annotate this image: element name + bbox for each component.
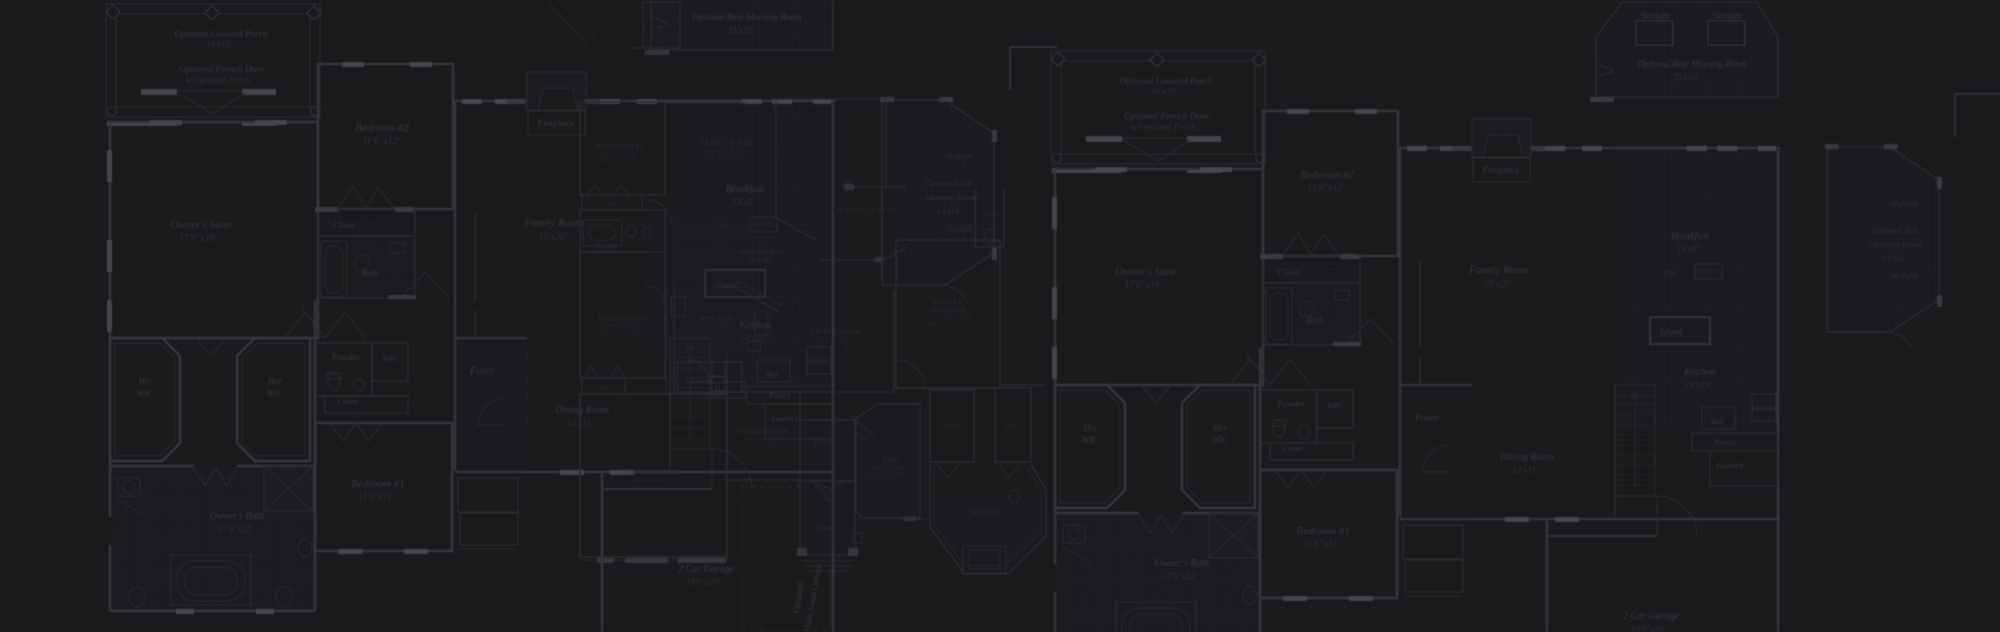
- svg-text:19'6"x20': 19'6"x20': [686, 577, 721, 587]
- svg-text:LIVING ROOM: LIVING ROOM: [811, 328, 862, 336]
- svg-text:W.I.C.: W.I.C.: [943, 423, 962, 430]
- svg-text:M. BATH: M. BATH: [971, 509, 999, 516]
- svg-text:Bedroom #2: Bedroom #2: [355, 122, 409, 134]
- svg-text:Ref: Ref: [766, 370, 779, 379]
- svg-text:UTILITY: UTILITY: [686, 379, 714, 386]
- svg-text:10'0" CLG. HT.: 10'0" CLG. HT.: [812, 344, 855, 350]
- svg-text:BATH: BATH: [983, 212, 998, 218]
- svg-text:ENTRY: ENTRY: [817, 526, 840, 533]
- svg-text:BREAKFAST: BREAKFAST: [740, 249, 784, 257]
- svg-text:COVERED PATIO: COVERED PATIO: [826, 206, 896, 215]
- svg-text:14'0" X 16'0": 14'0" X 16'0": [817, 337, 854, 343]
- svg-text:NOOK: NOOK: [749, 257, 771, 265]
- svg-text:Laundry: Laundry: [770, 414, 799, 423]
- svg-text:Morning Room: Morning Room: [924, 192, 977, 202]
- svg-text:15'x10': 15'x10': [728, 25, 755, 35]
- svg-text:DEN: DEN: [882, 457, 898, 465]
- svg-text:13'x10': 13'x10': [938, 207, 961, 216]
- svg-text:Optional Side: Optional Side: [927, 178, 974, 188]
- svg-text:Breakfast: Breakfast: [726, 184, 764, 195]
- svg-text:w/Optional Porch: w/Optional Porch: [186, 75, 251, 85]
- svg-text:12'0" X 11'2": 12'0" X 11'2": [604, 324, 640, 330]
- svg-text:18'x10': 18'x10': [206, 39, 233, 49]
- svg-text:FAMILY ROOM: FAMILY ROOM: [700, 139, 752, 147]
- svg-text:Closet: Closet: [333, 220, 355, 230]
- svg-text:FOYER: FOYER: [815, 440, 838, 447]
- svg-text:Fireplace: Fireplace: [537, 119, 575, 129]
- svg-text:1 CAR GARAGE: 1 CAR GARAGE: [623, 468, 678, 476]
- svg-text:WIC: WIC: [267, 388, 284, 398]
- svg-text:17'6"x12': 17'6"x12': [218, 524, 253, 534]
- svg-text:His: His: [138, 376, 152, 386]
- svg-text:11'6"x12': 11'6"x12': [362, 136, 400, 147]
- svg-text:Powder: Powder: [331, 352, 360, 362]
- svg-text:CLOSET: CLOSET: [599, 202, 620, 207]
- svg-text:18'x20': 18'x20': [539, 232, 569, 243]
- svg-text:Bedroom #1: Bedroom #1: [351, 478, 405, 490]
- svg-text:20'4" X 12'6": 20'4" X 12'6": [632, 478, 669, 484]
- svg-text:8'0" CLG. HT.: 8'0" CLG. HT.: [866, 473, 905, 479]
- svg-text:10'0" X 11'6": 10'0" X 11'6": [928, 322, 964, 328]
- svg-text:13'0" X 16'0" AND: 13'0" X 16'0" AND: [921, 315, 973, 321]
- svg-text:BEDROOM: BEDROOM: [929, 306, 967, 314]
- svg-text:Family Room: Family Room: [523, 217, 584, 229]
- svg-text:11'6"x11': 11'6"x11': [358, 492, 395, 503]
- svg-text:Closet: Closet: [338, 397, 359, 406]
- svg-text:Owner's Bath: Owner's Bath: [210, 511, 265, 522]
- svg-text:Optional Rear Morning Room: Optional Rear Morning Room: [693, 12, 802, 22]
- svg-text:2 Car Garage: 2 Car Garage: [678, 564, 735, 575]
- svg-text:DINING ROOM: DINING ROOM: [739, 429, 787, 436]
- svg-text:W.I.C.: W.I.C.: [1006, 423, 1025, 430]
- svg-text:Owner's Suite: Owner's Suite: [170, 219, 231, 231]
- svg-text:10'0" CLG. HT.: 10'0" CLG. HT.: [703, 154, 746, 160]
- svg-text:BATH: BATH: [596, 243, 616, 251]
- svg-text:WIC: WIC: [382, 353, 398, 363]
- svg-text:Bath: Bath: [362, 268, 379, 278]
- svg-text:BEDROOM #3: BEDROOM #3: [599, 315, 646, 323]
- svg-text:8'0" CLG. HT.: 8'0" CLG. HT.: [600, 159, 639, 165]
- svg-text:8'0" CLG. HT.: 8'0" CLG. HT.: [601, 331, 640, 337]
- svg-text:Skylight: Skylight: [945, 151, 973, 161]
- svg-text:Foyer: Foyer: [469, 366, 494, 377]
- svg-text:8'0" CLG. HT.: 8'0" CLG. HT.: [740, 444, 779, 450]
- svg-text:Optional French Door: Optional French Door: [179, 65, 265, 75]
- svg-text:11'0" X 12'0": 11'0" X 12'0": [744, 437, 780, 443]
- svg-text:MASTER: MASTER: [933, 298, 963, 306]
- svg-text:Skylight: Skylight: [945, 223, 973, 233]
- svg-text:WIC: WIC: [137, 388, 154, 398]
- svg-text:CLOSET: CLOSET: [591, 385, 614, 391]
- svg-text:Her: Her: [267, 376, 282, 386]
- svg-text:14'x9': 14'x9': [732, 197, 754, 207]
- svg-text:Dining Room: Dining Room: [554, 405, 609, 416]
- svg-text:17'6"x18': 17'6"x18': [179, 233, 218, 244]
- svg-text:12'0" X 11'0": 12'0" X 11'0": [602, 152, 638, 158]
- svg-text:10'0" X 11'0": 10'0" X 11'0": [870, 466, 906, 472]
- svg-text:BEDROOM #2: BEDROOM #2: [597, 143, 644, 151]
